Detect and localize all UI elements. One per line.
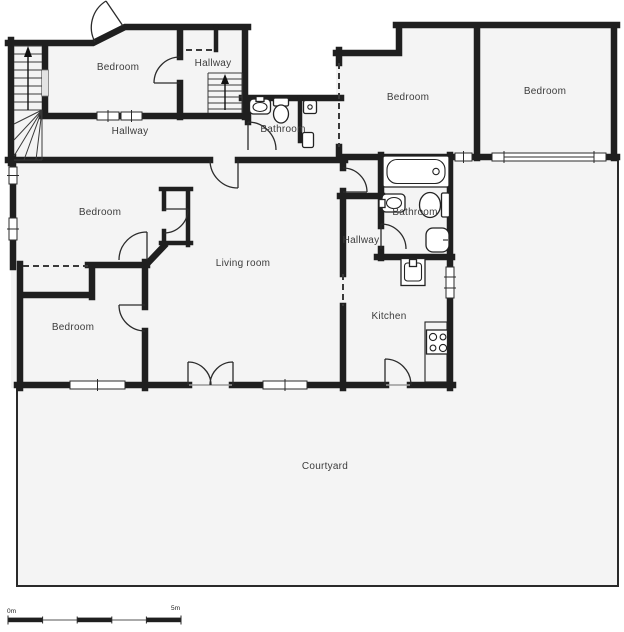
floorplan-canvas: Bedroom Hallway Hallway Bathroom Bedroom… — [0, 0, 624, 632]
scale-bar-segment — [8, 618, 43, 623]
room-label-living-room: Living room — [216, 258, 270, 269]
room-label-bedroom-top-right-outer: Bedroom — [524, 86, 566, 97]
scale-end-label: 5m — [171, 605, 180, 612]
toilet-icon — [274, 98, 289, 123]
stove-icon — [427, 330, 448, 354]
room-label-bedroom-top-right-inner: Bedroom — [387, 92, 429, 103]
stairwell-sliding-door — [42, 70, 49, 96]
scale-bar-segment — [77, 618, 112, 623]
room-label-bathroom-mid: Bathroom — [392, 207, 437, 218]
window — [7, 218, 19, 240]
window — [70, 379, 125, 391]
room-label-courtyard: Courtyard — [302, 461, 348, 472]
window — [97, 110, 119, 122]
window — [455, 151, 472, 163]
room-label-kitchen: Kitchen — [371, 311, 406, 322]
room-label-hallway-main: Hallway — [112, 126, 149, 137]
room-label-bathroom-top: Bathroom — [260, 124, 305, 135]
bathtub-icon — [383, 156, 449, 187]
window — [492, 151, 606, 163]
floorplan-svg: Bedroom Hallway Hallway Bathroom Bedroom… — [0, 0, 624, 632]
bidet-icon — [426, 228, 449, 252]
room-label-hallway-top: Hallway — [195, 58, 232, 69]
window — [263, 379, 307, 391]
room-label-bedroom-mid-left: Bedroom — [79, 207, 121, 218]
scale-bar-segment — [146, 618, 181, 623]
window — [444, 267, 456, 298]
sink-icon — [250, 97, 271, 115]
window — [121, 110, 142, 122]
room-label-bedroom-top-left: Bedroom — [97, 62, 139, 73]
window — [7, 167, 19, 184]
main-level-floor — [11, 155, 453, 388]
scale-bar: 0m 5m — [7, 605, 181, 625]
room-label-hallway-mid: Hallway — [343, 235, 380, 246]
scale-start-label: 0m — [7, 608, 16, 615]
kitchen-sink-icon — [401, 259, 425, 286]
room-label-bedroom-bottom-left: Bedroom — [52, 322, 94, 333]
